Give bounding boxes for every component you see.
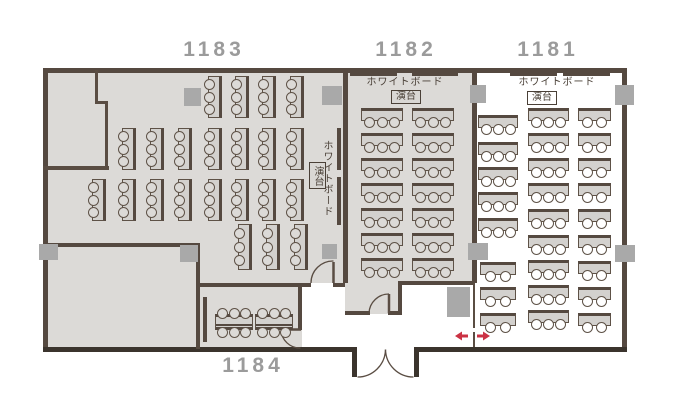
chair	[555, 167, 566, 178]
chair	[389, 142, 400, 153]
chair	[485, 296, 496, 307]
chair	[231, 207, 242, 218]
chair	[582, 167, 593, 178]
chair	[500, 271, 511, 282]
chair	[440, 242, 451, 253]
chair	[428, 142, 439, 153]
chair	[174, 182, 185, 193]
chair	[428, 192, 439, 203]
chair	[555, 244, 566, 255]
pillar	[180, 245, 198, 262]
chair	[377, 242, 388, 253]
chair	[377, 167, 388, 178]
chair	[582, 244, 593, 255]
chair	[377, 117, 388, 128]
chair	[493, 201, 504, 212]
chair	[415, 267, 426, 278]
whiteboard-bar	[337, 128, 341, 170]
chair	[428, 217, 439, 228]
chair	[440, 267, 451, 278]
chair	[389, 267, 400, 278]
chair	[389, 217, 400, 228]
chair	[118, 195, 129, 206]
chair	[217, 327, 228, 338]
chair	[118, 131, 129, 142]
chair	[118, 144, 129, 155]
chair	[258, 104, 269, 115]
chair	[582, 322, 593, 333]
chair	[596, 218, 607, 229]
chair	[204, 195, 215, 206]
chair	[231, 182, 242, 193]
chair	[555, 294, 566, 305]
table-mid-line	[256, 324, 292, 326]
chair	[262, 255, 273, 266]
chair	[596, 244, 607, 255]
chair	[290, 255, 301, 266]
chair	[531, 269, 542, 280]
chair	[229, 327, 240, 338]
chair	[231, 156, 242, 167]
chair	[204, 131, 215, 142]
chair	[258, 79, 269, 90]
chair	[531, 218, 542, 229]
chair	[204, 92, 215, 103]
chair	[531, 319, 542, 330]
chair	[543, 192, 554, 203]
chair	[234, 228, 245, 239]
chair	[231, 92, 242, 103]
chair	[258, 182, 269, 193]
chair	[582, 142, 593, 153]
chair	[481, 176, 492, 187]
chair	[555, 319, 566, 330]
chair	[286, 79, 297, 90]
chair	[258, 92, 269, 103]
chair	[493, 124, 504, 135]
chair	[286, 156, 297, 167]
chair	[258, 195, 269, 206]
chair	[262, 228, 273, 239]
chair	[555, 142, 566, 153]
chair	[555, 269, 566, 280]
chair	[389, 242, 400, 253]
chair	[582, 270, 593, 281]
chair	[389, 167, 400, 178]
chair	[258, 156, 269, 167]
chair	[596, 296, 607, 307]
chair	[231, 195, 242, 206]
pillar	[615, 85, 634, 105]
pillar	[615, 245, 635, 262]
chair	[88, 182, 99, 193]
chair	[258, 144, 269, 155]
chair	[543, 269, 554, 280]
chair	[582, 296, 593, 307]
whiteboard-bar	[203, 297, 207, 342]
chair	[280, 308, 291, 319]
chair	[286, 92, 297, 103]
chair	[481, 151, 492, 162]
chair	[481, 201, 492, 212]
chair	[377, 142, 388, 153]
chair	[118, 207, 129, 218]
chair	[88, 207, 99, 218]
chair	[555, 117, 566, 128]
chair	[269, 308, 280, 319]
chair	[485, 322, 496, 333]
chair	[505, 201, 516, 212]
chair	[543, 244, 554, 255]
chair	[428, 267, 439, 278]
pillar	[447, 287, 470, 317]
room-1183-door-arc	[311, 261, 334, 283]
chair	[481, 124, 492, 135]
chair	[440, 192, 451, 203]
table-mid-line	[216, 324, 252, 326]
room-1182-door-arc	[369, 294, 389, 313]
chair	[543, 294, 554, 305]
chair	[204, 79, 215, 90]
chair	[582, 117, 593, 128]
chair	[493, 176, 504, 187]
chair	[596, 192, 607, 203]
pillar	[184, 88, 201, 106]
whiteboard-bar	[350, 72, 397, 76]
chair	[204, 144, 215, 155]
whiteboard-bar	[563, 72, 610, 76]
pillar	[468, 243, 488, 260]
chair	[231, 79, 242, 90]
chair	[257, 327, 268, 338]
chair	[531, 244, 542, 255]
whiteboard-bar	[412, 72, 458, 76]
chair	[204, 104, 215, 115]
chair	[290, 228, 301, 239]
partition-arrow-left-icon	[455, 332, 468, 341]
chair	[531, 192, 542, 203]
entrance-door-left-arc	[358, 350, 386, 378]
chair	[415, 142, 426, 153]
chair	[596, 142, 607, 153]
chair	[234, 255, 245, 266]
chair	[505, 227, 516, 238]
chair	[240, 308, 251, 319]
chair	[258, 131, 269, 142]
chair	[415, 192, 426, 203]
partition-arrow-right-icon	[477, 332, 490, 341]
chair	[146, 195, 157, 206]
chair	[258, 207, 269, 218]
chair	[500, 296, 511, 307]
chair	[118, 182, 129, 193]
chair	[174, 195, 185, 206]
chair	[231, 104, 242, 115]
chair	[290, 242, 301, 253]
chair	[596, 270, 607, 281]
chair	[231, 131, 242, 142]
chair	[286, 144, 297, 155]
chair	[582, 218, 593, 229]
chair	[234, 242, 245, 253]
chair	[146, 207, 157, 218]
chair	[440, 117, 451, 128]
chair	[440, 142, 451, 153]
chair	[596, 322, 607, 333]
chair	[531, 142, 542, 153]
chair	[286, 104, 297, 115]
chair	[531, 167, 542, 178]
chair	[204, 207, 215, 218]
chair	[582, 192, 593, 203]
chair	[377, 217, 388, 228]
chair	[493, 227, 504, 238]
chair	[364, 267, 375, 278]
chair	[389, 192, 400, 203]
chair	[174, 207, 185, 218]
chair	[531, 117, 542, 128]
chair	[531, 294, 542, 305]
chair	[505, 124, 516, 135]
chair	[146, 156, 157, 167]
pillar	[470, 85, 486, 103]
chair	[262, 242, 273, 253]
chair	[543, 167, 554, 178]
entrance-door-right-arc	[386, 350, 414, 378]
chair	[364, 142, 375, 153]
chair	[286, 207, 297, 218]
chair	[229, 308, 240, 319]
chair	[543, 319, 554, 330]
chair	[286, 182, 297, 193]
chair	[174, 131, 185, 142]
pillar	[322, 244, 337, 259]
chair	[364, 117, 375, 128]
chair	[118, 156, 129, 167]
chair	[596, 167, 607, 178]
chair	[428, 242, 439, 253]
chair	[428, 117, 439, 128]
chair	[555, 192, 566, 203]
chair	[415, 167, 426, 178]
chair	[364, 242, 375, 253]
chair	[269, 327, 280, 338]
chair	[364, 167, 375, 178]
chair	[428, 167, 439, 178]
whiteboard-bar	[337, 177, 341, 225]
chair	[146, 131, 157, 142]
chair	[543, 142, 554, 153]
plan-canvas: 1183 1182 1181 1184 ホワイトボード 演台 ホワイトボード 演…	[0, 0, 689, 413]
chair	[543, 117, 554, 128]
chair	[377, 267, 388, 278]
chair	[217, 308, 228, 319]
chair	[481, 227, 492, 238]
chair	[146, 182, 157, 193]
chair	[505, 176, 516, 187]
pillar	[322, 86, 342, 105]
chair	[505, 151, 516, 162]
chair	[493, 151, 504, 162]
chair	[364, 217, 375, 228]
chair	[415, 117, 426, 128]
whiteboard-bar	[510, 72, 557, 76]
chair	[364, 192, 375, 203]
chair	[415, 217, 426, 228]
chair	[286, 195, 297, 206]
chair	[88, 195, 99, 206]
chair	[543, 218, 554, 229]
chair	[257, 308, 268, 319]
chair	[280, 327, 291, 338]
chair	[415, 242, 426, 253]
chair	[440, 167, 451, 178]
chair	[485, 271, 496, 282]
chair	[231, 144, 242, 155]
chair	[174, 156, 185, 167]
chair	[286, 131, 297, 142]
chair	[596, 117, 607, 128]
chair	[440, 217, 451, 228]
pillar	[39, 244, 58, 260]
chair	[204, 156, 215, 167]
chair	[204, 182, 215, 193]
chair	[377, 192, 388, 203]
chair	[555, 218, 566, 229]
chair	[146, 144, 157, 155]
chair	[500, 322, 511, 333]
chair	[389, 117, 400, 128]
chair	[240, 327, 251, 338]
chair	[174, 144, 185, 155]
